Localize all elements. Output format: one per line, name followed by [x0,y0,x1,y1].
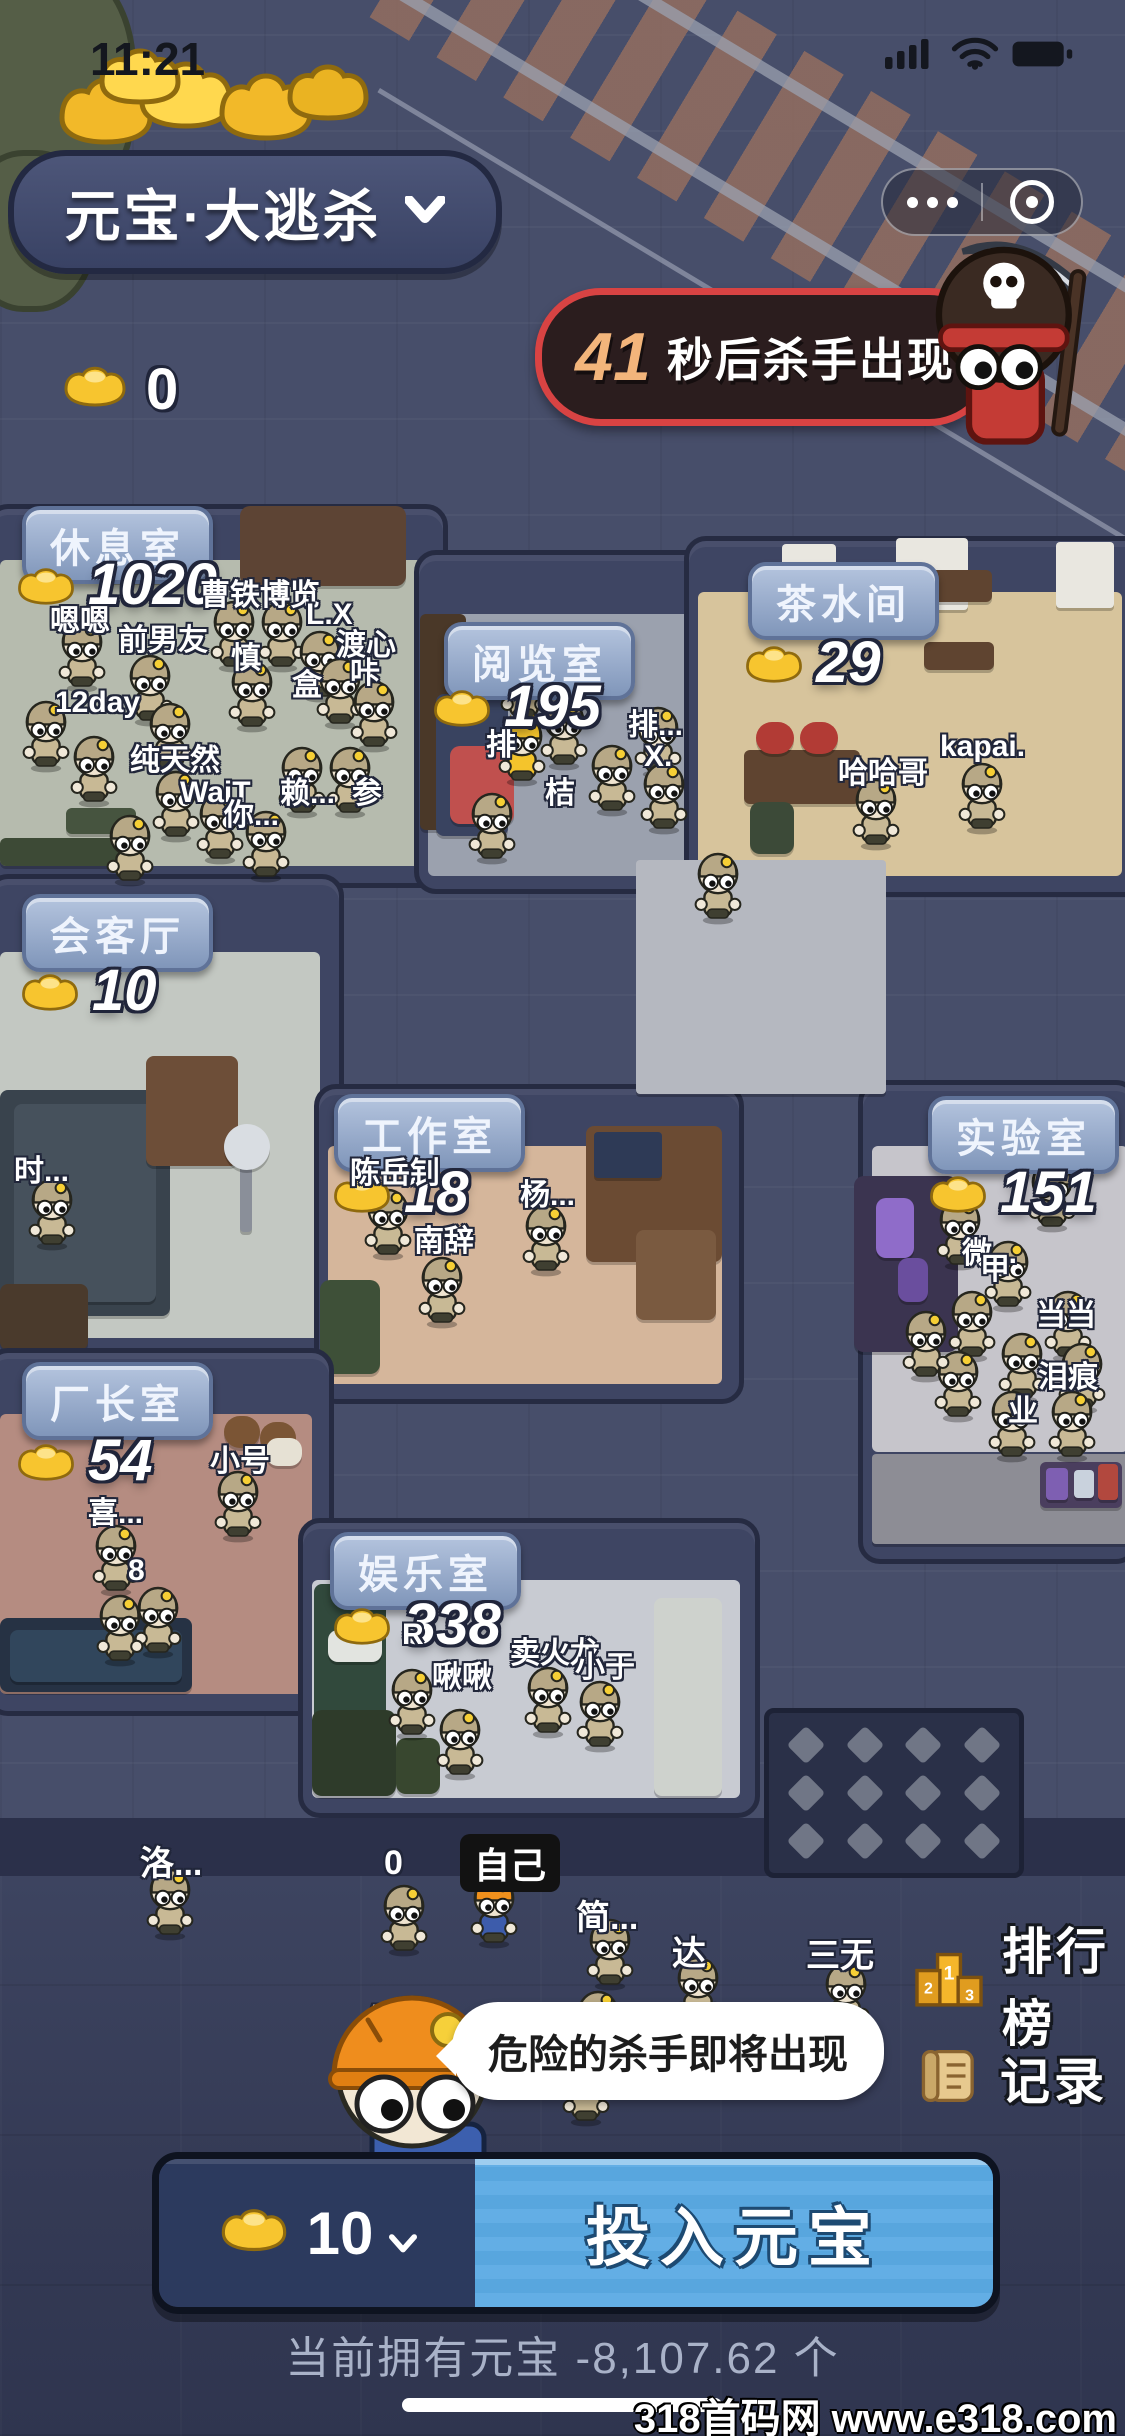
player-name: 咔 [350,648,380,692]
gold-ingot-icon [60,356,130,423]
leaderboard-button[interactable]: 123 排行榜 [912,1912,1125,2056]
killer-icon [912,226,1102,453]
furniture [594,1132,662,1178]
player-name: 陈岳钊 [350,1148,440,1192]
player-name: 小于 [575,1642,635,1686]
character-miner [588,742,636,822]
podium-icon: 123 [912,1950,986,2019]
player-name: 时... [14,1146,69,1190]
balance-text: 当前拥有元宝 -8,107.62 个 [0,2322,1125,2386]
furniture [312,1710,396,1796]
player-name: 南辞 [414,1216,474,1260]
wifi-icon [951,36,999,77]
furniture [800,722,838,754]
player-name: 参 [352,768,382,812]
room-gold-count-tea: 29 [742,634,881,692]
player-name: 排... [628,700,683,744]
player-name: 甲 [980,1244,1010,1288]
room-gold-count-lab: 151 [926,1164,1097,1222]
character-miner [106,812,154,892]
player-name: 0 [384,1844,403,1883]
furniture [396,1738,440,1794]
room-label-tea: 茶水间 [748,562,939,640]
character-miner [524,1664,572,1744]
furniture [636,860,886,1094]
status-bar: 11:21 [0,26,1125,86]
character-miner [522,1202,570,1282]
player-name: 小号 [210,1436,270,1480]
player-name: 简... [576,1890,638,1939]
invest-button[interactable]: 投入元宝 [475,2159,993,2307]
furniture [224,1124,270,1170]
furniture [756,722,794,754]
furniture [636,1230,716,1320]
furniture [876,1198,914,1258]
player-name: X. [644,740,672,774]
player-name: 当当 [1036,1290,1096,1334]
target-icon [1010,180,1054,224]
warning-speech-bubble: 危险的杀手即将出现 [452,2002,884,2100]
player-name: 达 [672,1926,706,1975]
furniture [0,1284,88,1350]
game-title-dropdown[interactable]: 元宝·大逃杀 [8,150,502,274]
player-name: 嗯嗯 [50,596,110,640]
signal-icon [885,36,939,77]
player-name: 8 [128,1554,145,1588]
chevron-down-icon [405,196,445,229]
room-gold-count-rest: 1020 [14,556,217,614]
battery-icon [1011,38,1073,75]
player-name: 三无 [806,1928,874,1977]
clock: 11:21 [90,32,205,86]
player-name: 桔 [545,768,575,812]
player-name: 盒 [292,660,322,704]
furniture [1046,1468,1068,1500]
player-name: 洛... [140,1836,202,1885]
player-name: 12day [55,686,140,720]
player-name: 赖... [280,768,335,812]
furniture [750,802,794,854]
scroll-icon [916,2045,984,2112]
character-miner [468,790,516,870]
player-name: 啾啾 [432,1652,492,1696]
player-name: 纯天然 [130,735,220,779]
floor-vent [764,1708,1024,1878]
furniture [924,642,994,670]
player-name: 排 [486,720,516,764]
character-miner [1048,1388,1096,1468]
furniture [266,1438,302,1466]
close-button[interactable] [983,170,1081,234]
more-icon [907,197,958,208]
player-name: 喜... [88,1488,143,1532]
bet-amount-selector[interactable]: 10 [159,2159,475,2307]
page-title: 元宝·大逃杀 [65,172,382,253]
svg-text:3: 3 [965,1987,974,2004]
player-name: 业 [1008,1386,1038,1430]
svg-text:1: 1 [944,1962,955,1984]
furniture [1074,1470,1094,1498]
character-miner [70,733,118,813]
player-name: 前男友 [118,615,208,659]
player-name: 慎 [231,633,261,677]
room-gold-count-meeting: 10 [18,962,157,1020]
furniture [1056,542,1114,608]
character-miner [694,850,742,930]
player-name: 哈哈哥 [838,748,928,792]
furniture [898,1258,928,1302]
round-gold-counter: 0 [60,356,178,423]
svg-text:2: 2 [924,1980,933,1997]
player-name: 泪痕 [1038,1352,1098,1396]
character-miner [388,1666,436,1746]
character-miner [576,1678,624,1758]
gold-ingot-icon [217,2199,291,2268]
app-root: 休息室1020 [0,0,1125,2436]
character-miner [418,1254,466,1334]
character-miner [902,1308,950,1388]
records-button[interactable]: 记录 [916,2042,1108,2114]
player-name: R [402,1618,424,1652]
furniture [654,1598,722,1796]
self-name-badge: 自己 [460,1834,560,1892]
player-name: 杨... [520,1170,575,1214]
character-miner [214,1468,262,1548]
countdown-value: 41 [575,318,651,396]
bet-amount-value: 10 [307,2199,374,2268]
round-gold-value: 0 [146,356,178,423]
character-miner [96,1592,144,1672]
character-miner [380,1882,428,1962]
player-name: 你... [224,790,279,834]
furniture [1098,1464,1118,1500]
character-miner [958,760,1006,840]
character-miner [436,1706,484,1786]
player-name: 曹铁博览 [200,570,320,614]
bet-bar: 10 投入元宝 [152,2152,1000,2314]
chevron-down-icon [389,2199,417,2268]
room-gold-count-boss: 54 [14,1432,153,1490]
more-button[interactable] [883,170,981,234]
player-name: kapai. [940,730,1025,764]
watermark: 318首码网 www.e318.com [634,2386,1117,2436]
